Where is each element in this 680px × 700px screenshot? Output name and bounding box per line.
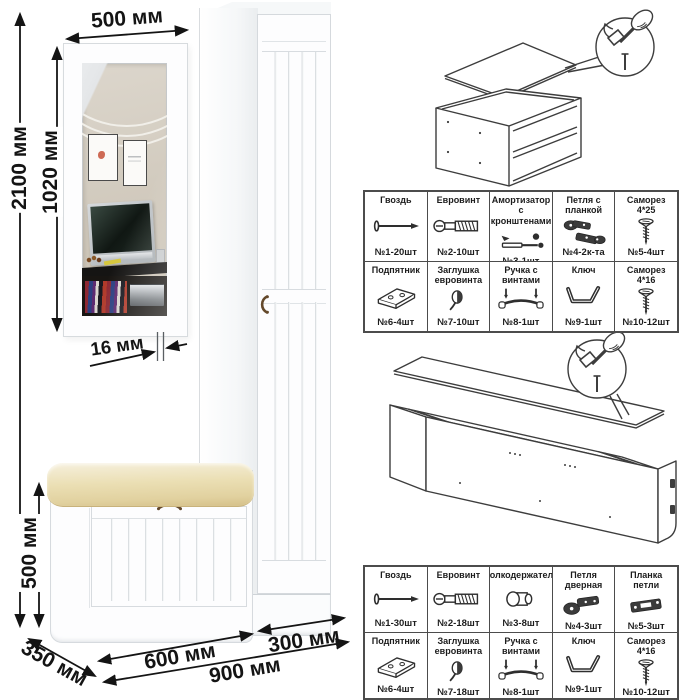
part-name: Ключ [572,636,596,646]
part-qty: №5-3шт [628,621,665,632]
product-dimensions-sheet: 2100 мм 1020 мм 500 мм 16 мм 500 мм 350 … [0,0,680,700]
hardware-table-bench: Гвоздь №1-20шт Евровинт №2-10шт Амортиза… [363,190,679,333]
part-name: Гвоздь [380,570,411,580]
part-name: Евровинт [437,195,480,205]
bench-height-label: 500 мм [18,514,42,592]
part-qty: №5-4шт [628,247,665,258]
footplate-icon [369,281,423,311]
part-name: Гвоздь [380,195,411,205]
hex-key-icon [557,281,611,311]
part-name: Саморез 4*25 [617,195,675,216]
nail-icon [369,584,423,614]
part-qty: №4-2к-та [563,247,605,258]
handle-with-screws-icon [494,286,548,316]
hammer-nail-inset [568,333,628,398]
part-qty: №2-18шт [437,618,479,629]
hardware-cell: Петля с планкой №4-2к-та [553,192,615,261]
euroscrew-icon [431,211,485,241]
euroscrew-cap-icon [431,286,485,316]
part-qty: №9-1шт [565,317,602,328]
part-name: Заглушка евровинта [430,265,488,286]
part-name: Заглушка евровинта [430,636,488,657]
hardware-cell: Заглушка евровинта №7-18шт [428,633,490,698]
hardware-cell: Ручка с винтами №8-1шт [490,633,552,698]
part-qty: №8-1шт [503,317,540,328]
part-name: Полкодержатель [490,570,552,580]
part-name: Амортизатор с кронштенами [491,195,551,226]
handle-with-screws-icon [494,657,548,687]
euroscrew-cap-icon [431,657,485,687]
assembly-diagram-bench [360,0,680,190]
total-height-label: 2100 мм [8,123,32,213]
hardware-cell: Гвоздь №1-20шт [365,192,427,261]
part-qty: №7-18шт [437,687,479,698]
hardware-cell: Полкодержатель №3-8шт [490,567,552,632]
part-qty: №4-3шт [565,621,602,632]
hardware-cell: Саморез 4*16 №10-12шт [615,633,677,698]
part-qty: №1-20шт [375,247,417,258]
footplate-icon [369,650,423,680]
part-qty: №6-4шт [377,684,414,695]
hinge-plate-icon [619,591,673,621]
part-name: Ручка с винтами [492,636,550,657]
part-name: Саморез 4*16 [617,636,675,657]
part-qty: №10-12шт [622,317,669,328]
part-name: Подпятник [372,265,420,275]
hardware-cell: Подпятник №6-4шт [365,262,427,331]
part-name: Петля с планкой [555,195,613,216]
hex-key-icon [557,650,611,680]
part-name: Петля дверная [555,570,613,591]
hardware-cell: Ключ №9-1шт [553,633,615,698]
hinge-with-plate-icon [557,216,611,246]
hardware-cell: Петля дверная №4-3шт [553,567,615,632]
hardware-cell: Амортизатор с кронштенами №3-1шт [490,192,552,261]
hammer-nail-inset [596,6,656,76]
screw-icon [619,657,673,687]
hardware-cell: Ключ №9-1шт [553,262,615,331]
hardware-cell: Заглушка евровинта №7-10шт [428,262,490,331]
part-qty: №9-1шт [565,684,602,695]
shelf-pin-icon [494,584,548,614]
part-qty: №1-30шт [375,618,417,629]
mirror-height-label: 1020 мм [39,127,63,217]
part-qty: №7-10шт [437,317,479,328]
part-qty: №6-4шт [377,317,414,328]
part-qty: №3-8шт [503,618,540,629]
hardware-cell: Саморез 4*16 №10-12шт [615,262,677,331]
part-name: Евровинт [437,570,480,580]
hardware-cell: Ручка с винтами №8-1шт [490,262,552,331]
screw-icon [619,286,673,316]
hardware-cell: Планка петли №5-3шт [615,567,677,632]
part-name: Планка петли [617,570,675,591]
part-name: Подпятник [372,636,420,646]
part-qty: №2-10шт [437,247,479,258]
part-name: Ручка с винтами [492,265,550,286]
screw-icon [619,216,673,246]
part-qty: №3-1шт [503,256,540,261]
gas-strut-icon [494,226,548,256]
hardware-table-wardrobe: Гвоздь №1-30шт Евровинт №2-18шт Полкодер… [363,565,679,700]
euroscrew-icon [431,584,485,614]
hardware-cell: Евровинт №2-10шт [428,192,490,261]
hardware-cell: Подпятник №6-4шт [365,633,427,698]
nail-icon [369,211,423,241]
hardware-cell: Гвоздь №1-30шт [365,567,427,632]
part-qty: №10-12шт [622,687,669,698]
part-qty: №8-1шт [503,687,540,698]
hardware-cell: Евровинт №2-18шт [428,567,490,632]
assembly-diagram-wardrobe [360,333,680,565]
part-name: Ключ [572,265,596,275]
hardware-cell: Саморез 4*25 №5-4шт [615,192,677,261]
door-hinge-icon [557,591,611,621]
part-name: Саморез 4*16 [617,265,675,286]
